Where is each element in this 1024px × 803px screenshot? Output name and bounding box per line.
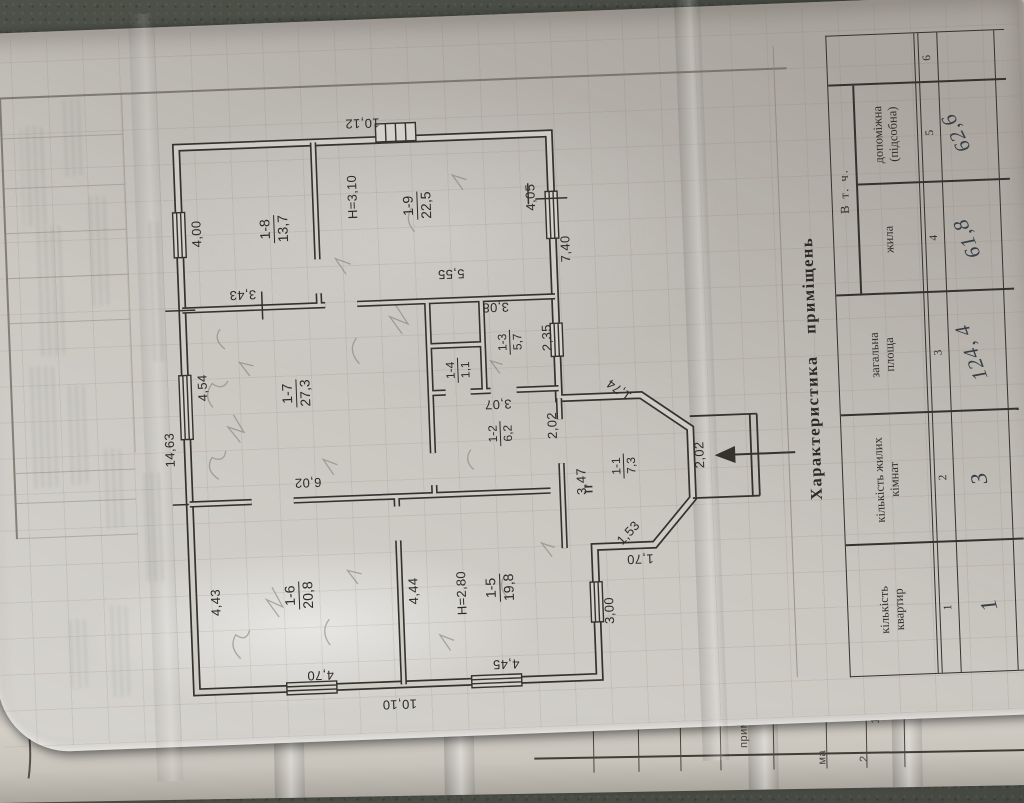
dim-bottom-left: 3,00 bbox=[601, 597, 617, 624]
height-label-r15: H=2,80 bbox=[453, 571, 470, 616]
dim-r18-height: 3,43 bbox=[229, 287, 256, 303]
dim-r15-width: 4,44 bbox=[405, 577, 421, 604]
room-label-1-8: 1-8 13,7 bbox=[257, 214, 291, 243]
room-label-1-6: 1-6 20,8 bbox=[282, 581, 316, 610]
header-total-area: загальна площа bbox=[836, 293, 928, 416]
rotated-document-scene: примітка лишки ма 13 2 bbox=[0, 0, 1024, 768]
interior-walls bbox=[176, 132, 600, 692]
room-label-1-4: 1-4 1,1 bbox=[444, 357, 474, 383]
room-label-1-5: 1-5 19,8 bbox=[483, 573, 517, 602]
dim-r19-height: 5,55 bbox=[437, 266, 464, 282]
header-living: жила bbox=[856, 183, 923, 295]
window-symbols bbox=[172, 190, 606, 699]
dim-r17-width: 4,54 bbox=[194, 374, 210, 401]
dim-r15-height: 4,45 bbox=[492, 656, 519, 672]
outer-walls bbox=[176, 128, 700, 692]
room-label-1-3: 1-3 5,7 bbox=[496, 329, 526, 355]
room-label-1-2: 1-2 6,2 bbox=[486, 420, 516, 446]
dim-vestibule-side: 1,70 bbox=[626, 551, 653, 567]
dim-r19-width: 4,05 bbox=[522, 183, 538, 210]
dim-porch-door: 2,02 bbox=[691, 441, 707, 468]
colnum-6: 6 bbox=[917, 32, 938, 83]
dim-r12-height: 3,07 bbox=[484, 397, 511, 413]
header-living-rooms: кількість жилих кімнат bbox=[841, 413, 933, 546]
dim-r17-height: 6,02 bbox=[294, 475, 321, 491]
dim-total-top: 14,63 bbox=[162, 433, 178, 468]
dim-total-right: 10,12 bbox=[345, 115, 380, 131]
document-content: 14,63 10,12 10,10 7,40 3,00 4,00 3,43 1-… bbox=[0, 0, 1024, 787]
entrance-arrow-icon bbox=[717, 445, 795, 462]
dim-r18-width: 4,00 bbox=[188, 220, 204, 247]
colnum-5: 5 bbox=[919, 82, 942, 183]
dim-r13-height: 3,08 bbox=[482, 300, 509, 316]
header-auxiliary: допоміжна (підсобна) bbox=[852, 83, 919, 185]
header-flats: кількість квартир bbox=[846, 543, 938, 676]
characteristics-table: В т. ч. кількість квартир кількість жили… bbox=[825, 29, 1024, 677]
room-label-1-7: 1-7 27,3 bbox=[279, 379, 313, 408]
room-label-1-9: 1-9 22,5 bbox=[400, 191, 434, 220]
photo-of-floorplan-document: { "plan": { "overall": { "top_width": "1… bbox=[0, 0, 1024, 768]
floorplan-sheet: 14,63 10,12 10,10 7,40 3,00 4,00 3,43 1-… bbox=[0, 0, 1024, 754]
height-label-r19: H=3,10 bbox=[344, 175, 361, 220]
dim-total-left: 10,10 bbox=[382, 696, 417, 712]
under-label-2: 2 bbox=[858, 755, 870, 762]
stove-block bbox=[375, 123, 416, 143]
room-label-1-1: 1-1 7,3 bbox=[610, 453, 640, 479]
dim-r12-width: 2,02 bbox=[544, 412, 560, 439]
dim-r16-height: 4,70 bbox=[307, 668, 334, 684]
dim-r13-width: 2,35 bbox=[539, 324, 555, 351]
dim-r16-width: 4,43 bbox=[208, 589, 224, 616]
dim-bottom-right: 7,40 bbox=[557, 235, 573, 262]
dim-hall-width: 3,47 bbox=[573, 468, 589, 495]
